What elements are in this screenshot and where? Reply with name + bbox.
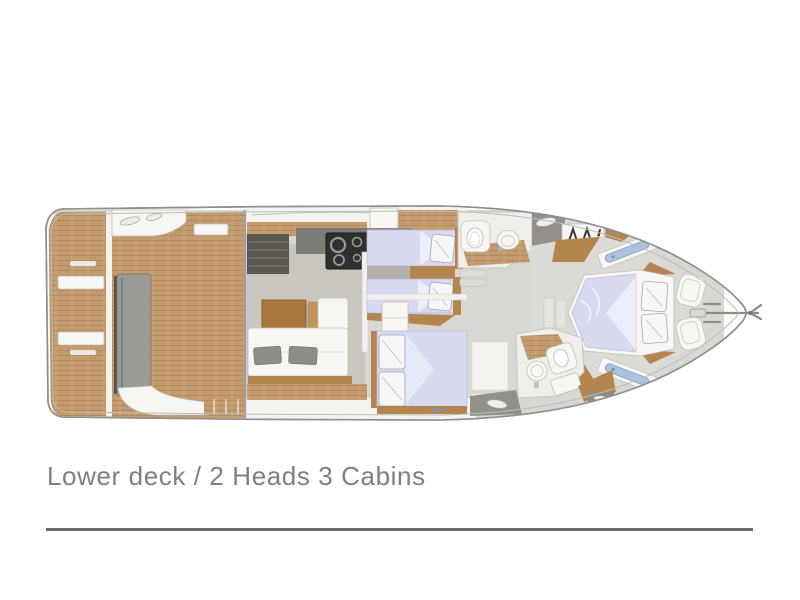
bow-roller <box>690 309 706 317</box>
sofa-base <box>248 376 352 385</box>
plan-caption: Lower deck / 2 Heads 3 Cabins <box>47 461 426 492</box>
deck-strip <box>247 384 367 400</box>
master-bed <box>568 270 674 356</box>
master-head <box>516 328 584 398</box>
divider <box>46 528 753 531</box>
bench-edge <box>114 276 117 394</box>
swim-platform <box>49 212 112 416</box>
cabin-door <box>472 342 508 390</box>
companionway-steps <box>460 279 486 286</box>
transom-wall <box>106 212 112 416</box>
platform-mark <box>70 261 96 266</box>
page: Lower deck / 2 Heads 3 Cabins <box>0 0 800 600</box>
headboard <box>371 331 377 408</box>
cockpit <box>112 210 245 418</box>
platform-step <box>58 276 104 289</box>
bed-pillow <box>430 234 456 263</box>
twin-guest-cabin <box>367 227 463 326</box>
flybridge-stairs <box>247 234 289 274</box>
bed-pillow <box>641 313 668 344</box>
interior <box>49 206 724 422</box>
master-steps <box>544 298 554 328</box>
sofa-cushion <box>289 346 318 364</box>
companionway-steps <box>460 270 486 277</box>
yacht-floorplan <box>0 0 800 440</box>
toilet-icon <box>461 221 490 252</box>
master-steps <box>556 300 566 328</box>
guest-head <box>458 212 532 268</box>
sofa-cushion <box>253 346 281 365</box>
platform-step <box>58 332 104 345</box>
nightstand <box>410 266 455 279</box>
bed-base <box>377 406 467 414</box>
drawer-pull <box>429 408 445 413</box>
cabin-wall <box>367 294 467 300</box>
cockpit-step <box>194 224 228 235</box>
platform-mark <box>70 350 96 355</box>
bed-pillow <box>641 281 668 312</box>
